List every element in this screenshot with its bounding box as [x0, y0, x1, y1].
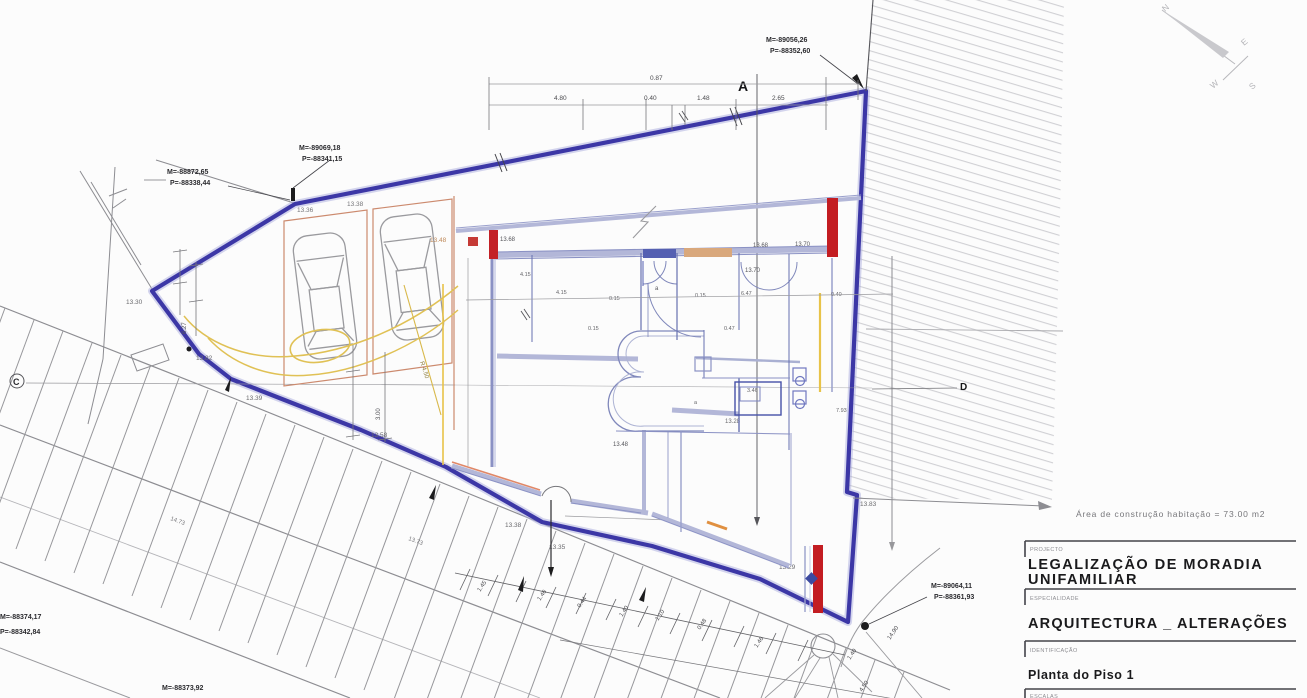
svg-text:13.70: 13.70 [745, 268, 761, 274]
svg-text:P=-88352,60: P=-88352,60 [770, 48, 810, 55]
svg-text:13.68: 13.68 [500, 237, 516, 243]
svg-text:1.48: 1.48 [697, 95, 710, 102]
svg-text:13.38: 13.38 [505, 522, 522, 529]
svg-text:M=-89064,11: M=-89064,11 [931, 583, 972, 590]
svg-text:13.38: 13.38 [347, 201, 364, 208]
svg-text:A: A [738, 78, 748, 94]
svg-text:C: C [13, 377, 20, 387]
svg-text:D: D [960, 382, 967, 393]
svg-text:0.40: 0.40 [644, 95, 657, 102]
svg-text:6.27: 6.27 [182, 322, 188, 334]
svg-text:3.00: 3.00 [376, 408, 382, 420]
svg-text:13.36: 13.36 [297, 207, 314, 214]
svg-text:4.15: 4.15 [520, 272, 531, 278]
svg-text:P=-88342,84: P=-88342,84 [0, 629, 40, 636]
svg-text:13.70: 13.70 [795, 242, 811, 248]
svg-text:P=-88338,44: P=-88338,44 [170, 180, 210, 187]
svg-text:4.80: 4.80 [554, 95, 567, 102]
svg-text:13.82: 13.82 [196, 355, 213, 362]
svg-text:Área de construção habitação =: Área de construção habitação = 73.00 m2 [1076, 509, 1265, 519]
svg-text:M=-88373,92: M=-88373,92 [162, 685, 204, 692]
svg-text:2.65: 2.65 [772, 95, 785, 102]
svg-text:0.47: 0.47 [724, 326, 735, 332]
svg-text:M=-88374,17: M=-88374,17 [0, 614, 42, 621]
svg-text:7.93: 7.93 [836, 408, 847, 414]
svg-text:IDENTIFICAÇÃO: IDENTIFICAÇÃO [1030, 647, 1078, 654]
svg-text:ESPECIALIDADE: ESPECIALIDADE [1030, 596, 1079, 602]
svg-text:M=-89069,18: M=-89069,18 [299, 145, 341, 152]
svg-text:P=-88361,93: P=-88361,93 [934, 594, 974, 601]
svg-text:LEGALIZAÇÃO DE MORADIA: LEGALIZAÇÃO DE MORADIA [1028, 555, 1263, 573]
svg-text:UNIFAMILIAR: UNIFAMILIAR [1028, 572, 1138, 588]
svg-text:0.15: 0.15 [588, 326, 599, 332]
svg-text:13.83: 13.83 [860, 501, 877, 508]
svg-text:0.15: 0.15 [695, 293, 706, 299]
svg-text:Planta do Piso 1: Planta do Piso 1 [1028, 668, 1134, 682]
svg-text:0.15: 0.15 [609, 296, 620, 302]
svg-text:P=-88341,15: P=-88341,15 [302, 156, 342, 163]
svg-text:PROJECTO: PROJECTO [1030, 547, 1063, 553]
svg-text:13.48: 13.48 [430, 237, 447, 244]
svg-text:M=-88872,65: M=-88872,65 [167, 169, 209, 176]
svg-text:3.46: 3.46 [747, 388, 758, 394]
svg-text:13.68: 13.68 [753, 243, 769, 249]
svg-text:M=-89056,26: M=-89056,26 [766, 37, 808, 44]
svg-text:13.48: 13.48 [613, 442, 629, 448]
svg-text:ARQUITECTURA _ ALTERAÇÕES: ARQUITECTURA _ ALTERAÇÕES [1028, 614, 1288, 632]
svg-text:13.39: 13.39 [246, 395, 263, 402]
svg-text:0.87: 0.87 [650, 75, 663, 82]
svg-text:13.30: 13.30 [126, 299, 143, 306]
svg-text:ESCALAS: ESCALAS [1030, 694, 1058, 698]
svg-text:4.15: 4.15 [556, 290, 567, 296]
